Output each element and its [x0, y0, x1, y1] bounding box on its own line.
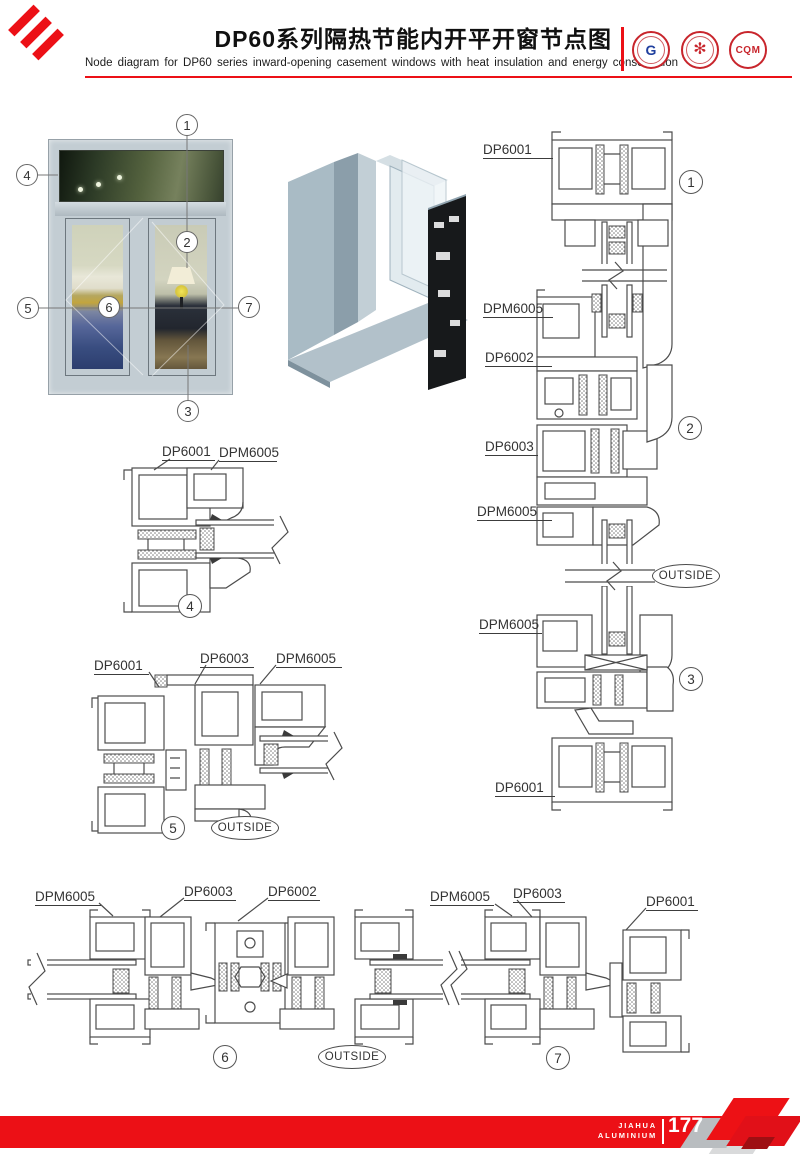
catalog-page: DP60系列隔热节能内开平开窗节点图 Node diagram for DP60…	[0, 0, 800, 1167]
brand-line-2: ALUMINIUM	[545, 1131, 657, 1141]
seal-monogram: G	[646, 42, 657, 58]
node-number: 2	[686, 421, 694, 436]
profile-label: DP6002	[268, 884, 320, 901]
profile-label: DPM6005	[479, 617, 542, 634]
vertical-section-drawing	[475, 118, 795, 818]
profile-label: DP6001	[162, 444, 215, 461]
seal-inner-ring: ✻	[686, 36, 714, 64]
node-circle-6: 6	[213, 1045, 237, 1069]
callout-number: 5	[24, 301, 31, 316]
logo-separator	[621, 27, 624, 71]
footer-brand: JIAHUA ALUMINIUM	[545, 1121, 657, 1141]
star-certification-seal-icon: ✻	[681, 31, 719, 69]
callout-5: 5	[17, 297, 39, 319]
callout-number: 7	[245, 300, 252, 315]
node-number: 1	[687, 175, 695, 190]
page-subtitle: Node diagram for DP60 series inward-open…	[85, 57, 612, 69]
callout-6: 6	[98, 296, 120, 318]
seal-star-glyph: ✻	[693, 42, 706, 58]
outside-text: OUTSIDE	[659, 570, 714, 582]
node-circle-1: 1	[679, 170, 703, 194]
page-title: DP60系列隔热节能内开平开窗节点图	[85, 20, 612, 54]
node-number: 7	[554, 1051, 562, 1066]
node-circle-7: 7	[546, 1046, 570, 1070]
outside-text: OUTSIDE	[218, 822, 273, 834]
profile-label: DP6001	[94, 658, 149, 675]
photo-leader-lines	[0, 100, 280, 430]
profile-label: DPM6005	[477, 504, 552, 521]
node-circle-3: 3	[679, 667, 703, 691]
detail-4-drawing	[118, 436, 313, 618]
seal-inner-ring: G	[637, 36, 665, 64]
gtb-certification-seal-icon: G	[632, 31, 670, 69]
profile-label: DPM6005	[35, 889, 101, 906]
footer-divider	[662, 1119, 664, 1144]
node-circle-5: 5	[161, 816, 185, 840]
outside-tag: OUTSIDE	[211, 816, 279, 840]
callout-3: 3	[177, 400, 199, 422]
profile-label: DP6001	[483, 142, 553, 159]
profile-label: DPM6005	[483, 301, 553, 318]
node-circle-2: 2	[678, 416, 702, 440]
profile-label: DP6001	[646, 894, 698, 911]
detail-5-drawing	[88, 648, 353, 843]
profile-label: DP6003	[485, 439, 538, 456]
callout-number: 2	[183, 235, 190, 250]
outside-text: OUTSIDE	[325, 1051, 380, 1063]
profile-label: DP6003	[200, 651, 254, 668]
page-number: 177	[668, 1114, 703, 1138]
profile-label: DPM6005	[430, 889, 494, 906]
profile-label: DP6003	[184, 884, 236, 901]
callout-4: 4	[16, 164, 38, 186]
profile-label: DPM6005	[276, 651, 342, 668]
callout-number: 6	[105, 300, 112, 315]
seal-monogram: CQM	[736, 45, 761, 56]
header: DP60系列隔热节能内开平开窗节点图 Node diagram for DP60…	[85, 20, 612, 69]
node-number: 5	[169, 821, 177, 836]
profile-label: DP6002	[485, 350, 552, 367]
profile-label: DPM6005	[219, 445, 277, 462]
callout-7: 7	[238, 296, 260, 318]
arrow-shape-darkred	[741, 1137, 775, 1149]
callout-number: 1	[183, 118, 190, 133]
node-circle-4: 4	[178, 594, 202, 618]
callout-number: 3	[184, 404, 191, 419]
callout-number: 4	[23, 168, 30, 183]
brand-line-1: JIAHUA	[545, 1121, 657, 1131]
cqm-certification-seal-icon: CQM	[729, 31, 767, 69]
outside-tag: OUTSIDE	[652, 564, 720, 588]
profile-corner-render	[278, 150, 468, 390]
callout-2: 2	[176, 231, 198, 253]
outside-tag: OUTSIDE	[318, 1045, 386, 1069]
header-rule	[85, 76, 792, 78]
callout-1: 1	[176, 114, 198, 136]
profile-label: DP6001	[495, 780, 555, 797]
profile-label: DP6003	[513, 886, 565, 903]
node-number: 6	[221, 1050, 229, 1065]
node-number: 4	[186, 599, 194, 614]
node-number: 3	[687, 672, 695, 687]
